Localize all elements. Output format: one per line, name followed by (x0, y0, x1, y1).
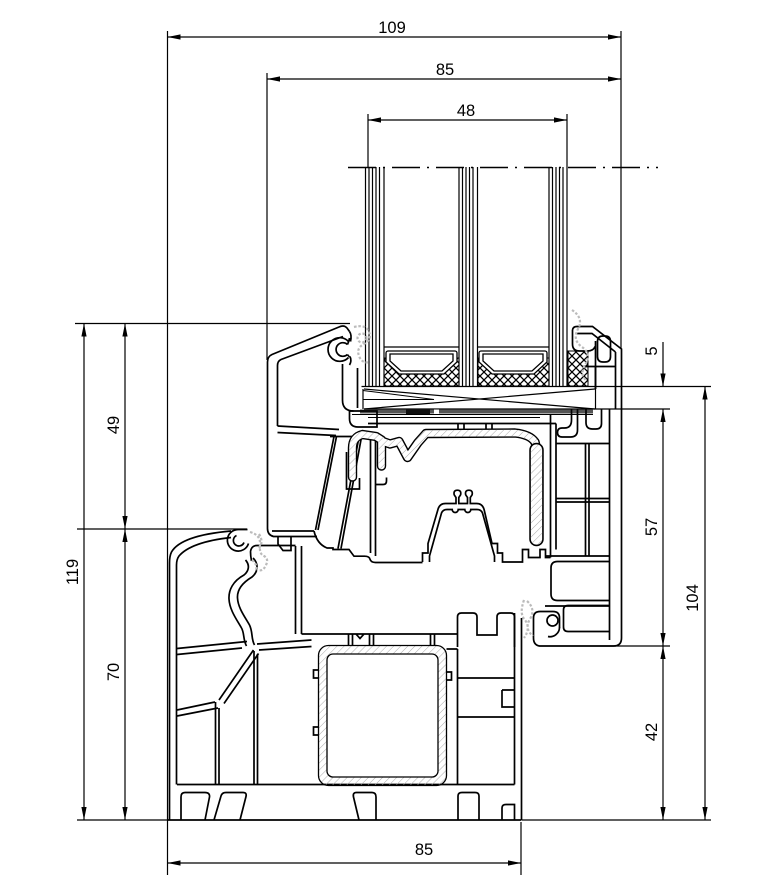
svg-text:104: 104 (684, 584, 702, 612)
svg-text:49: 49 (105, 416, 123, 434)
svg-text:42: 42 (643, 723, 661, 741)
svg-text:5: 5 (643, 346, 661, 355)
svg-text:48: 48 (457, 102, 475, 120)
svg-text:85: 85 (436, 61, 454, 79)
svg-text:57: 57 (643, 518, 661, 536)
svg-text:85: 85 (415, 841, 433, 859)
svg-text:119: 119 (64, 559, 82, 585)
svg-text:109: 109 (378, 19, 406, 37)
svg-text:70: 70 (105, 663, 123, 681)
